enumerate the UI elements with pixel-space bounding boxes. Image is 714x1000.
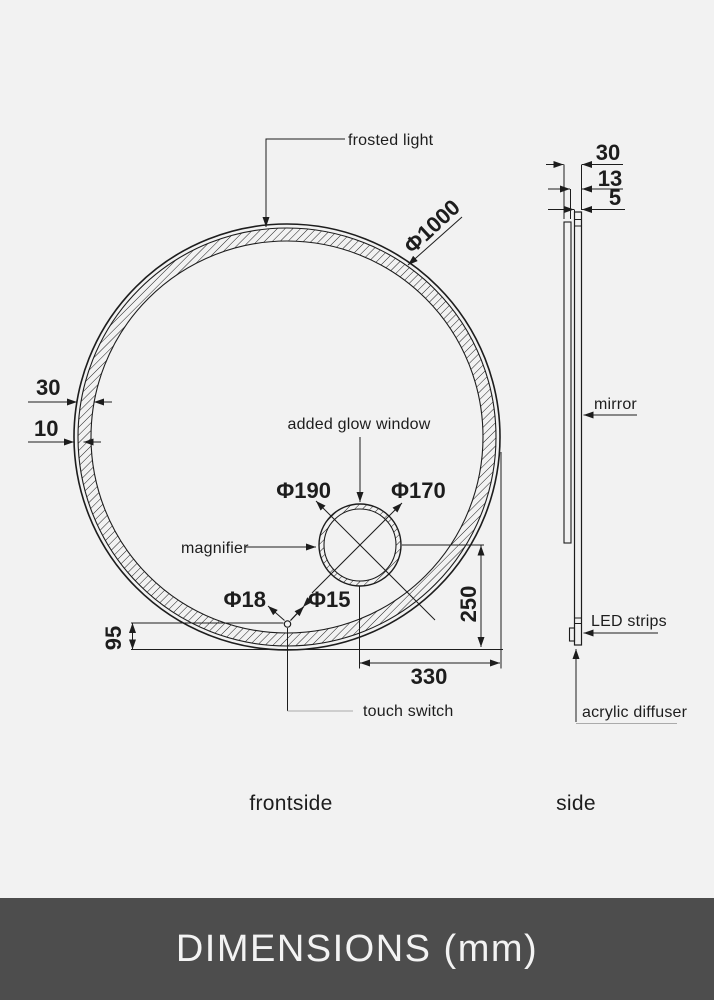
acrylic-diffuser-label: acrylic diffuser <box>582 704 688 721</box>
magnifier-label: magnifier <box>181 540 249 557</box>
magnifier-cross-line <box>312 503 402 593</box>
side-led-strip-box <box>570 628 575 641</box>
mirror-label: mirror <box>594 396 637 413</box>
magnifier-offset-250-value: 250 <box>456 586 481 623</box>
mirror-callout: mirror <box>584 396 638 415</box>
led-strips-label: LED strips <box>591 613 667 630</box>
magnifier-offset-330-value: 330 <box>411 664 448 689</box>
touch-switch-dot <box>284 621 290 627</box>
diameter-1000-callout: Φ1000 <box>399 195 465 265</box>
switch-offset-95-value: 95 <box>101 626 126 650</box>
touch-switch-label: touch switch <box>363 703 453 720</box>
ring-width-30-value: 30 <box>36 375 60 400</box>
magnifier-inner-diameter-value: Φ170 <box>391 478 446 503</box>
touch-inner-leader-line2 <box>291 607 305 621</box>
depth-5-value: 5 <box>609 185 621 210</box>
mirror-outer-circle <box>74 224 500 650</box>
frosted-ring-inner-circle <box>91 241 483 633</box>
footer-title: DIMENSIONS (mm) <box>176 928 538 971</box>
frosted-light-label: frosted light <box>348 132 434 149</box>
added-glow-window-label: added glow window <box>287 416 430 433</box>
technical-drawing: frosted light Φ1000 30 10 Φ190 Φ170 <box>0 0 714 1000</box>
depth-30-value: 30 <box>596 140 620 165</box>
frosted-light-callout: frosted light <box>266 132 434 227</box>
frontside-caption: frontside <box>249 792 332 815</box>
acrylic-diffuser-callout: acrylic diffuser <box>576 649 688 724</box>
side-caption: side <box>556 792 596 815</box>
frosted-ring-hatch <box>78 228 496 646</box>
touch-inner-diameter-value: Φ15 <box>308 587 351 612</box>
touch-outer-diameter-value: Φ18 <box>223 587 266 612</box>
side-view: 30 13 5 mirror LED strips acryli <box>546 140 688 815</box>
footer-bar: DIMENSIONS (mm) <box>0 898 714 1000</box>
diameter-1000-value: Φ1000 <box>399 195 465 259</box>
frost-inset-10-value: 10 <box>34 416 58 441</box>
magnifier-callout: magnifier <box>181 540 316 557</box>
touch-outer-leader-line <box>268 606 285 621</box>
side-mirror-panel <box>575 212 582 645</box>
led-strips-callout: LED strips <box>584 613 667 633</box>
frosted-light-leader-line <box>266 139 345 227</box>
front-view: frosted light Φ1000 30 10 Φ190 Φ170 <box>28 132 503 815</box>
magnifier-outer-diameter-value: Φ190 <box>276 478 331 503</box>
side-back-frame <box>564 222 571 543</box>
